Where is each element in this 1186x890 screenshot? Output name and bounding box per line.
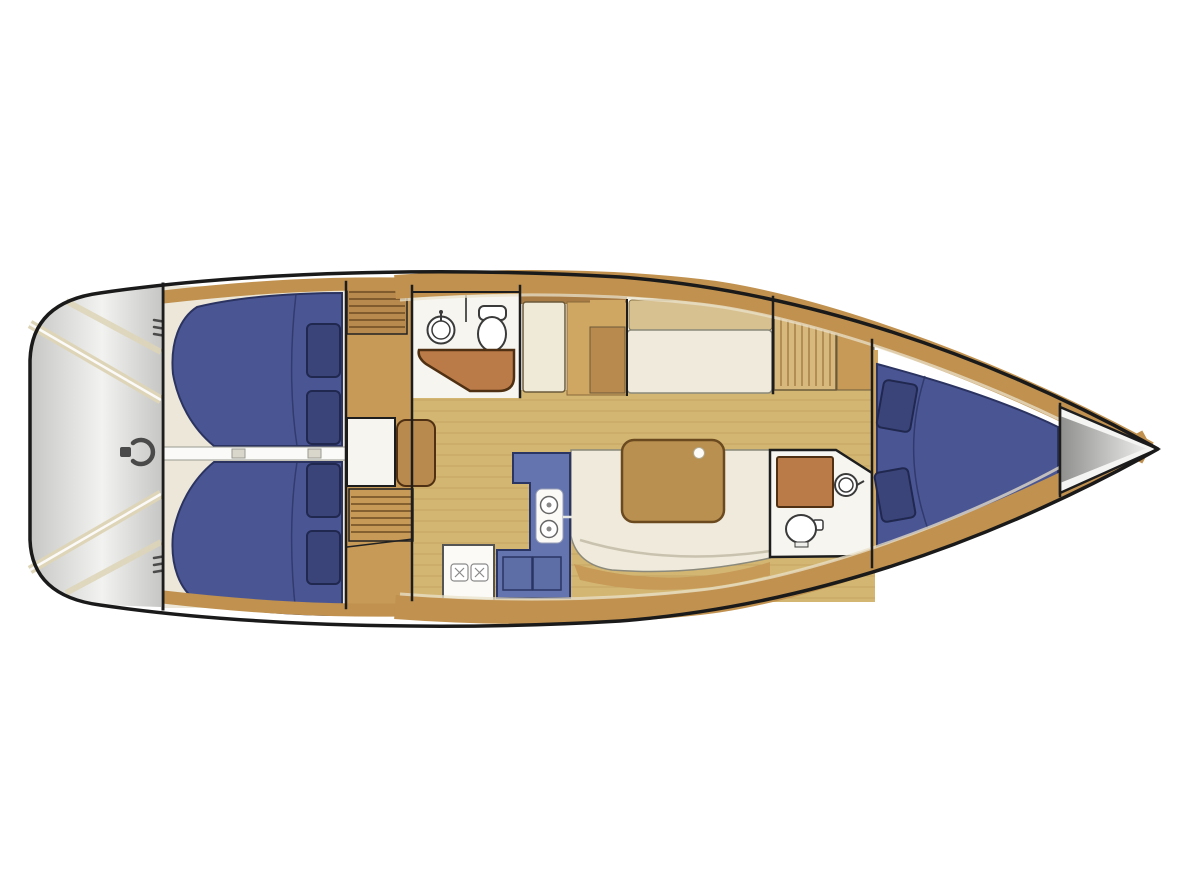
galley-locker-panel	[533, 557, 561, 590]
yacht-floor-plan-canvas	[0, 0, 1186, 890]
tall-locker	[523, 302, 565, 392]
settee-upper-cabinet	[590, 300, 625, 327]
settee-upper-seat	[627, 330, 772, 393]
nav-desk	[347, 418, 395, 486]
vanity-counter	[777, 457, 833, 507]
companionway-steps-lower	[349, 489, 413, 541]
pillow	[876, 379, 918, 432]
divider-notch	[232, 449, 245, 458]
yacht-floor-plan	[0, 0, 1186, 890]
aft-cabin-port-berth	[172, 293, 342, 446]
companionway-locker	[347, 336, 410, 416]
aft-cabin-starboard-berth	[172, 462, 342, 615]
stove-icon	[443, 545, 494, 603]
head-forward	[770, 450, 872, 557]
settee-upper	[590, 300, 772, 393]
cockpit-transom	[30, 287, 166, 607]
nav-seat	[397, 420, 435, 486]
pillow	[874, 467, 916, 522]
settee-upper-armrest	[590, 327, 625, 393]
divider-notch	[308, 449, 321, 458]
galley-locker-panel	[503, 557, 532, 590]
head-aft	[413, 292, 519, 398]
saloon-table	[622, 440, 724, 522]
toilet-icon	[478, 306, 506, 351]
table-cupholder	[694, 448, 705, 459]
aft-cabin-divider	[163, 447, 347, 460]
